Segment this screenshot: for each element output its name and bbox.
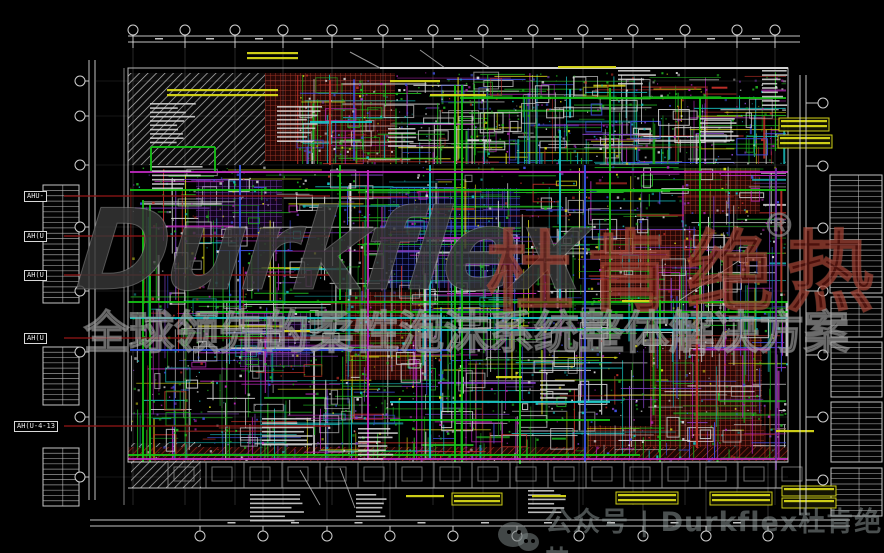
grid-bubble (818, 350, 828, 360)
annotation-text (784, 500, 834, 502)
annotation-text (712, 494, 770, 496)
grid-bubble (574, 531, 584, 541)
grid-bubble (75, 347, 85, 357)
annotation-text (454, 500, 500, 502)
grid-bubble (770, 25, 780, 35)
annotation-text (454, 495, 500, 497)
grid-bubble (818, 475, 828, 485)
hatched-region (128, 73, 265, 165)
annotation-text (390, 80, 440, 82)
grid-bubble (428, 25, 438, 35)
cad-linework (0, 0, 884, 553)
annotation-text (167, 89, 278, 91)
annotation-text (781, 120, 827, 122)
schedule-table (831, 468, 882, 516)
grid-bubble (230, 25, 240, 35)
annotation-text (784, 488, 834, 490)
grid-bubble (478, 25, 488, 35)
annotation-text (284, 330, 310, 332)
annotation-text (406, 495, 444, 497)
annotation-box (782, 498, 836, 508)
annotation-box (710, 492, 772, 505)
grid-bubble (75, 412, 85, 422)
annotation-text (558, 66, 616, 68)
annotation-text (532, 495, 566, 497)
grid-bubble (327, 25, 337, 35)
grid-bubble (448, 531, 458, 541)
equipment-tag: AH(U (24, 231, 47, 242)
grid-bubble (75, 76, 85, 86)
annotation-text (496, 376, 522, 378)
grid-bubble (258, 531, 268, 541)
annotation-text (712, 499, 770, 501)
schedule-table (831, 402, 882, 462)
grid-bubble (818, 286, 828, 296)
grid-bubble (385, 531, 395, 541)
grid-bubble (732, 25, 742, 35)
grid-bubble (628, 25, 638, 35)
equipment-tag: AH(U (24, 270, 47, 281)
annotation-text (622, 300, 652, 302)
grid-bubble (638, 531, 648, 541)
grid-bubble (75, 286, 85, 296)
annotation-box (782, 486, 836, 496)
grid-bubble (578, 25, 588, 35)
grid-bubble (75, 222, 85, 232)
cad-drawing-canvas: Durkflex 杜肯绝热 ® 全球领先的柔性泡沫系统整体解决方案 AHU-AH… (0, 0, 884, 553)
annotation-text (247, 52, 298, 54)
grid-bubble (818, 412, 828, 422)
grid-bubble (195, 531, 205, 541)
schedule-table (43, 448, 79, 506)
annotation-box (779, 118, 829, 131)
annotation-box (452, 493, 502, 505)
grid-bubble (818, 161, 828, 171)
annotation-text (618, 499, 676, 501)
grid-bubble (818, 223, 828, 233)
grid-bubble (763, 531, 773, 541)
annotation-text (780, 137, 830, 139)
grid-bubble (378, 25, 388, 35)
grid-bubble (512, 531, 522, 541)
grid-bubble (128, 25, 138, 35)
annotation-text (247, 57, 298, 59)
equipment-tag: AHU- (24, 191, 47, 202)
grid-bubble (75, 160, 85, 170)
grid-bubble (322, 531, 332, 541)
grid-bubble (528, 25, 538, 35)
grid-bubble (75, 111, 85, 121)
schedule-table (43, 347, 79, 405)
grid-bubble (680, 25, 690, 35)
annotation-text (776, 430, 814, 432)
annotation-text (781, 125, 827, 127)
grid-bubble (180, 25, 190, 35)
grid-bubble (818, 98, 828, 108)
grid-bubble (75, 472, 85, 482)
equipment-tag: AH(U-4-13 (14, 421, 58, 432)
annotation-box (778, 135, 832, 148)
annotation-text (430, 94, 486, 96)
grid-bubble (278, 25, 288, 35)
annotation-text (167, 94, 278, 96)
equipment-tag: AH(U (24, 333, 47, 344)
grid-bubble (701, 531, 711, 541)
annotation-box (616, 492, 678, 504)
annotation-text (780, 142, 830, 144)
annotation-text (618, 494, 676, 496)
